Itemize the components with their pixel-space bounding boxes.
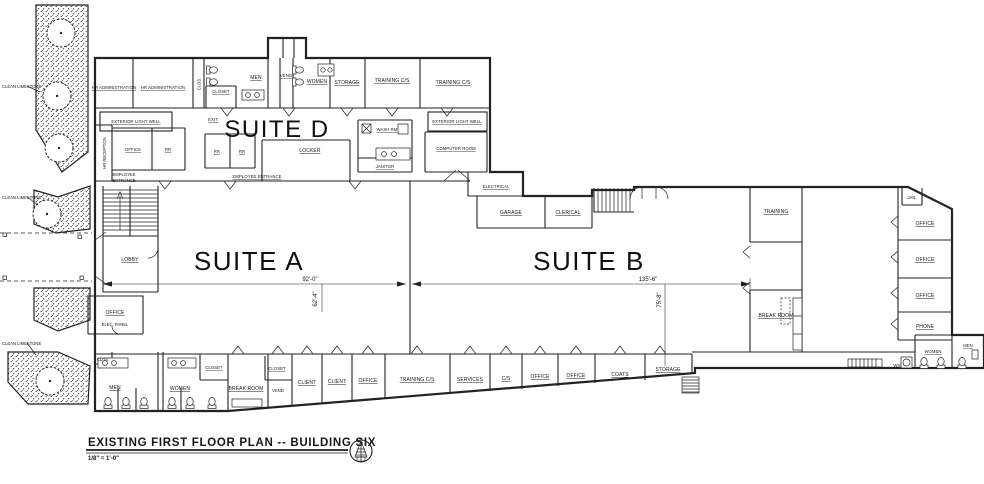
room-label-clos-west: CLOS. — [97, 357, 110, 362]
tree-icon — [45, 134, 73, 162]
annotation-employee-entrance-center: EMPLOYEE ENTRANCE — [233, 174, 282, 179]
room-label-clerical: CLERICAL — [555, 210, 580, 216]
annotation-light-well-right: EXTERIOR LIGHT WELL — [432, 119, 482, 124]
room-label-services: SERVICES — [457, 377, 484, 383]
room-label-janitor: JANITOR — [376, 164, 395, 169]
room-label-vend-top: VEND — [280, 73, 292, 78]
room-label-cs: C/S — [502, 376, 511, 382]
tree-icon — [47, 19, 75, 47]
drawing-sheet: CLEAN LIMESTONE CLEAN LIMESTONE CLEAN LI… — [0, 0, 984, 484]
room-label-closet-west: CLOSET — [205, 365, 223, 370]
title-block: EXISTING FIRST FLOOR PLAN -- BUILDING SI… — [86, 437, 376, 462]
room-label-rr-a: RR — [165, 147, 171, 152]
room-label-rr-c: RR — [239, 149, 245, 154]
room-label-men-west: MEN — [109, 385, 121, 391]
room-label-office-e1: OFFICE — [916, 221, 935, 227]
drawing-title: EXISTING FIRST FLOOR PLAN -- BUILDING SI… — [88, 437, 376, 449]
room-label-wh: WH — [894, 363, 901, 368]
dim-suite-a-depth: 62'-4" — [313, 291, 319, 306]
site-label-limestone-mid: CLEAN LIMESTONE — [2, 195, 41, 200]
floor-plan-canvas: CLEAN LIMESTONE CLEAN LIMESTONE CLEAN LI… — [0, 0, 984, 484]
suite-b-label: SUITE B — [533, 246, 645, 276]
annotation-exit: EXIT — [208, 117, 218, 122]
room-label-closet-b: CLOSET — [268, 366, 286, 371]
room-label-clos-vertical: CLOS. — [197, 78, 202, 91]
room-label-jan: JAN. — [907, 195, 916, 200]
room-label-office-b3: OFFICE — [567, 373, 586, 379]
limestone-bed-mid-lower — [34, 288, 90, 331]
room-label-office-e2: OFFICE — [916, 257, 935, 263]
room-label-phone: PHONE — [916, 324, 935, 330]
room-label-training-cs-1: TRAINING C/S — [375, 78, 410, 84]
room-label-garage: GARAGE — [500, 210, 523, 216]
room-label-hr-administration-1: HR ADMINISTRATION — [92, 85, 136, 90]
room-label-storage-b: STORAGE — [655, 367, 681, 373]
room-label-women-top: WOMEN — [307, 79, 328, 85]
room-label-electrical: ELECTRICAL — [483, 184, 510, 189]
site-label-limestone-bottom: CLEAN LIMESTONE — [2, 341, 41, 346]
room-label-closet-top: CLOSET — [212, 89, 230, 94]
annotation-employee-entrance-l2: ENTRANCE — [112, 178, 135, 183]
site-label-limestone-top: CLEAN LIMESTONE — [2, 84, 41, 89]
room-label-coats: COATS — [611, 372, 629, 378]
entry-walkway — [0, 233, 92, 281]
tree-icon — [36, 367, 64, 395]
room-label-sw-office: OFFICE — [106, 310, 125, 316]
room-label-locker: LOCKER — [299, 148, 320, 154]
room-label-client-1: CLIENT — [298, 380, 316, 386]
room-label-training-cs-2: TRAINING C/S — [436, 80, 471, 86]
dim-suite-b-depth: 75'-8" — [657, 292, 663, 307]
drawing-scale: 1/8" = 1'-0" — [88, 456, 119, 462]
room-label-hr-reception: HR RECEPTION — [102, 137, 107, 169]
room-label-client-2: CLIENT — [328, 379, 346, 385]
room-label-men-east: MEN — [963, 343, 973, 348]
room-label-office-e3: OFFICE — [916, 293, 935, 299]
room-label-break-room: BREAK ROOM — [229, 386, 264, 392]
dim-suite-b-width: 135'-6" — [639, 277, 658, 283]
north-arrow-icon — [350, 440, 372, 462]
room-label-suite-d-office: OFFICE — [125, 147, 141, 152]
room-label-storage-top: STORAGE — [334, 80, 360, 86]
room-label-women-east: WOMEN — [924, 349, 941, 354]
room-label-women-west: WOMEN — [170, 386, 191, 392]
room-label-wash-rm: WASH RM — [377, 127, 398, 132]
room-label-training-cs-b: TRAINING C/S — [400, 377, 435, 383]
suite-d-label: SUITE D — [224, 116, 329, 143]
room-label-computer-room: COMPUTER ROOM — [436, 146, 476, 151]
site-landscaping: CLEAN LIMESTONE CLEAN LIMESTONE CLEAN LI… — [0, 5, 92, 404]
room-label-men-top: MEN — [250, 75, 262, 81]
tree-icon — [43, 82, 71, 110]
suite-a-label: SUITE A — [194, 246, 304, 276]
room-label-lobby: LOBBY — [121, 257, 139, 263]
room-label-office-b2: OFFICE — [531, 374, 550, 380]
room-label-training-east: TRAINING — [764, 209, 789, 215]
room-label-hr-administration-2: HR ADMINISTRATION — [141, 85, 185, 90]
room-label-office-b1: OFFICE — [359, 378, 378, 384]
room-label-rr-b: RR — [214, 149, 220, 154]
room-label-break-room-east: BREAK ROOM — [759, 313, 794, 319]
room-label-elec-panel: ELEC. PANEL — [102, 322, 129, 327]
walkway-bollards — [3, 233, 84, 280]
dim-suite-a-width: 92'-0" — [302, 277, 317, 283]
room-label-vend-b: VEND — [272, 388, 284, 393]
annotation-employee-entrance-l1: EMPLOYEE — [112, 172, 135, 177]
annotation-light-well-left: EXTERIOR LIGHT WELL — [111, 119, 161, 124]
